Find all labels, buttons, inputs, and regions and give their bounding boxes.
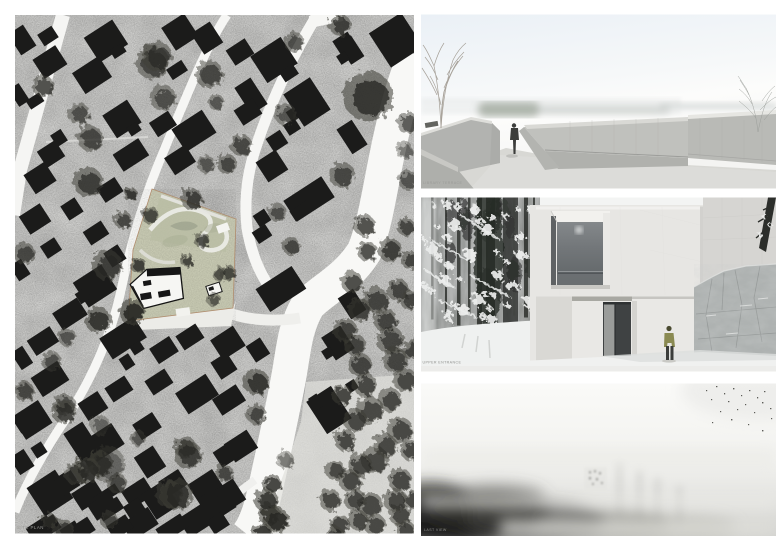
svg-text:LAST VIEW: LAST VIEW (424, 528, 447, 532)
svg-text:LIBRARY TERRACE: LIBRARY TERRACE (423, 181, 463, 185)
svg-text:SITE PLAN: SITE PLAN (17, 525, 44, 530)
svg-text:UPPER ENTRANCE: UPPER ENTRANCE (423, 361, 462, 365)
